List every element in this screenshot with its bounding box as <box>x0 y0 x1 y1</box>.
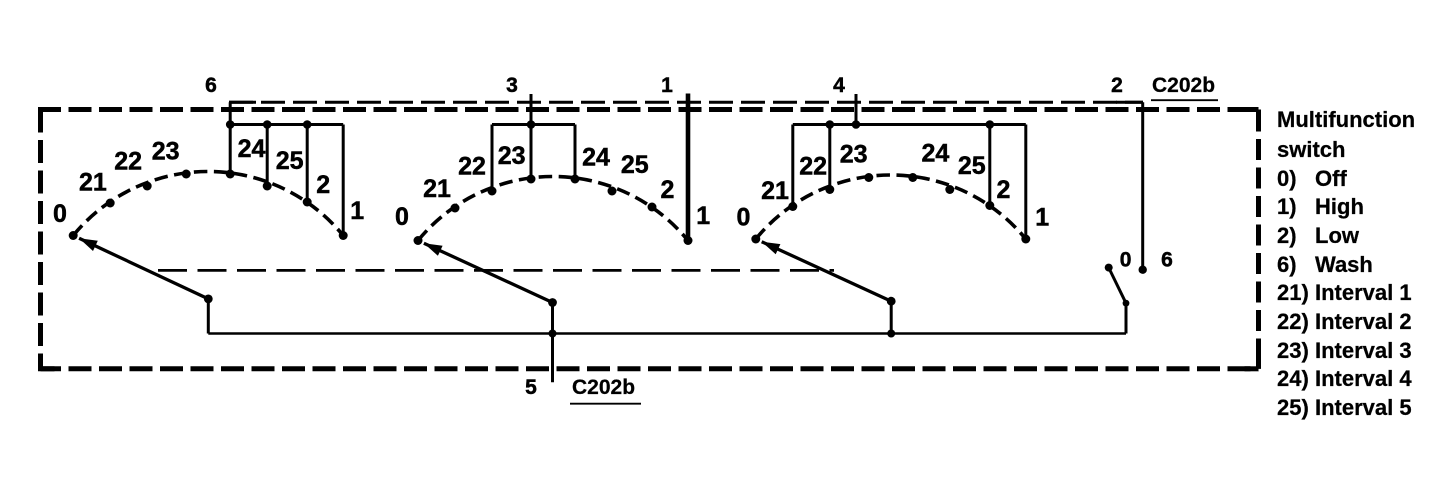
svg-text:0: 0 <box>395 203 409 231</box>
svg-text:24: 24 <box>921 140 949 168</box>
svg-text:22): 22) <box>1277 309 1309 334</box>
svg-text:6): 6) <box>1277 252 1297 277</box>
svg-text:2: 2 <box>1111 74 1123 97</box>
svg-text:24: 24 <box>582 143 610 171</box>
svg-text:Multifunction: Multifunction <box>1277 107 1415 132</box>
svg-text:Interval 3: Interval 3 <box>1315 338 1412 363</box>
svg-text:21: 21 <box>423 175 451 203</box>
svg-text:1): 1) <box>1277 194 1297 219</box>
svg-text:Off: Off <box>1315 166 1347 191</box>
svg-text:21: 21 <box>79 169 107 197</box>
svg-text:1: 1 <box>661 74 673 97</box>
svg-text:5: 5 <box>525 376 537 399</box>
svg-text:25: 25 <box>276 147 304 175</box>
svg-text:Low: Low <box>1315 223 1360 248</box>
svg-text:25: 25 <box>958 152 986 180</box>
svg-text:C202b: C202b <box>1152 74 1215 97</box>
svg-text:Interval 4: Interval 4 <box>1315 366 1412 391</box>
svg-text:Interval 2: Interval 2 <box>1315 309 1412 334</box>
svg-text:0: 0 <box>1120 249 1132 272</box>
svg-text:22: 22 <box>799 153 827 181</box>
svg-text:0: 0 <box>737 204 751 232</box>
svg-text:23: 23 <box>840 140 868 168</box>
svg-text:2): 2) <box>1277 223 1297 248</box>
svg-text:1: 1 <box>696 202 710 230</box>
svg-text:25: 25 <box>621 151 649 179</box>
svg-text:6: 6 <box>205 74 217 97</box>
svg-text:24: 24 <box>238 135 266 163</box>
svg-text:25): 25) <box>1277 395 1309 420</box>
svg-text:0): 0) <box>1277 166 1297 191</box>
svg-text:Wash: Wash <box>1315 252 1373 277</box>
svg-text:switch: switch <box>1277 137 1345 162</box>
svg-text:0: 0 <box>53 200 67 228</box>
svg-text:23: 23 <box>152 138 180 166</box>
svg-text:1: 1 <box>1035 204 1049 232</box>
svg-text:Interval 5: Interval 5 <box>1315 395 1412 420</box>
svg-text:4: 4 <box>833 74 845 97</box>
svg-text:3: 3 <box>506 74 518 97</box>
svg-text:21): 21) <box>1277 280 1309 305</box>
svg-text:1: 1 <box>350 197 364 225</box>
svg-text:23): 23) <box>1277 338 1309 363</box>
svg-text:Interval 1: Interval 1 <box>1315 280 1412 305</box>
svg-text:2: 2 <box>661 176 675 204</box>
svg-text:2: 2 <box>316 171 330 199</box>
svg-text:C202b: C202b <box>572 376 635 399</box>
svg-text:21: 21 <box>761 177 789 205</box>
svg-text:24): 24) <box>1277 366 1309 391</box>
svg-text:2: 2 <box>996 176 1010 204</box>
svg-text:23: 23 <box>498 142 526 170</box>
svg-text:6: 6 <box>1161 249 1173 272</box>
svg-text:22: 22 <box>114 148 142 176</box>
svg-text:22: 22 <box>458 153 486 181</box>
svg-text:High: High <box>1315 194 1364 219</box>
